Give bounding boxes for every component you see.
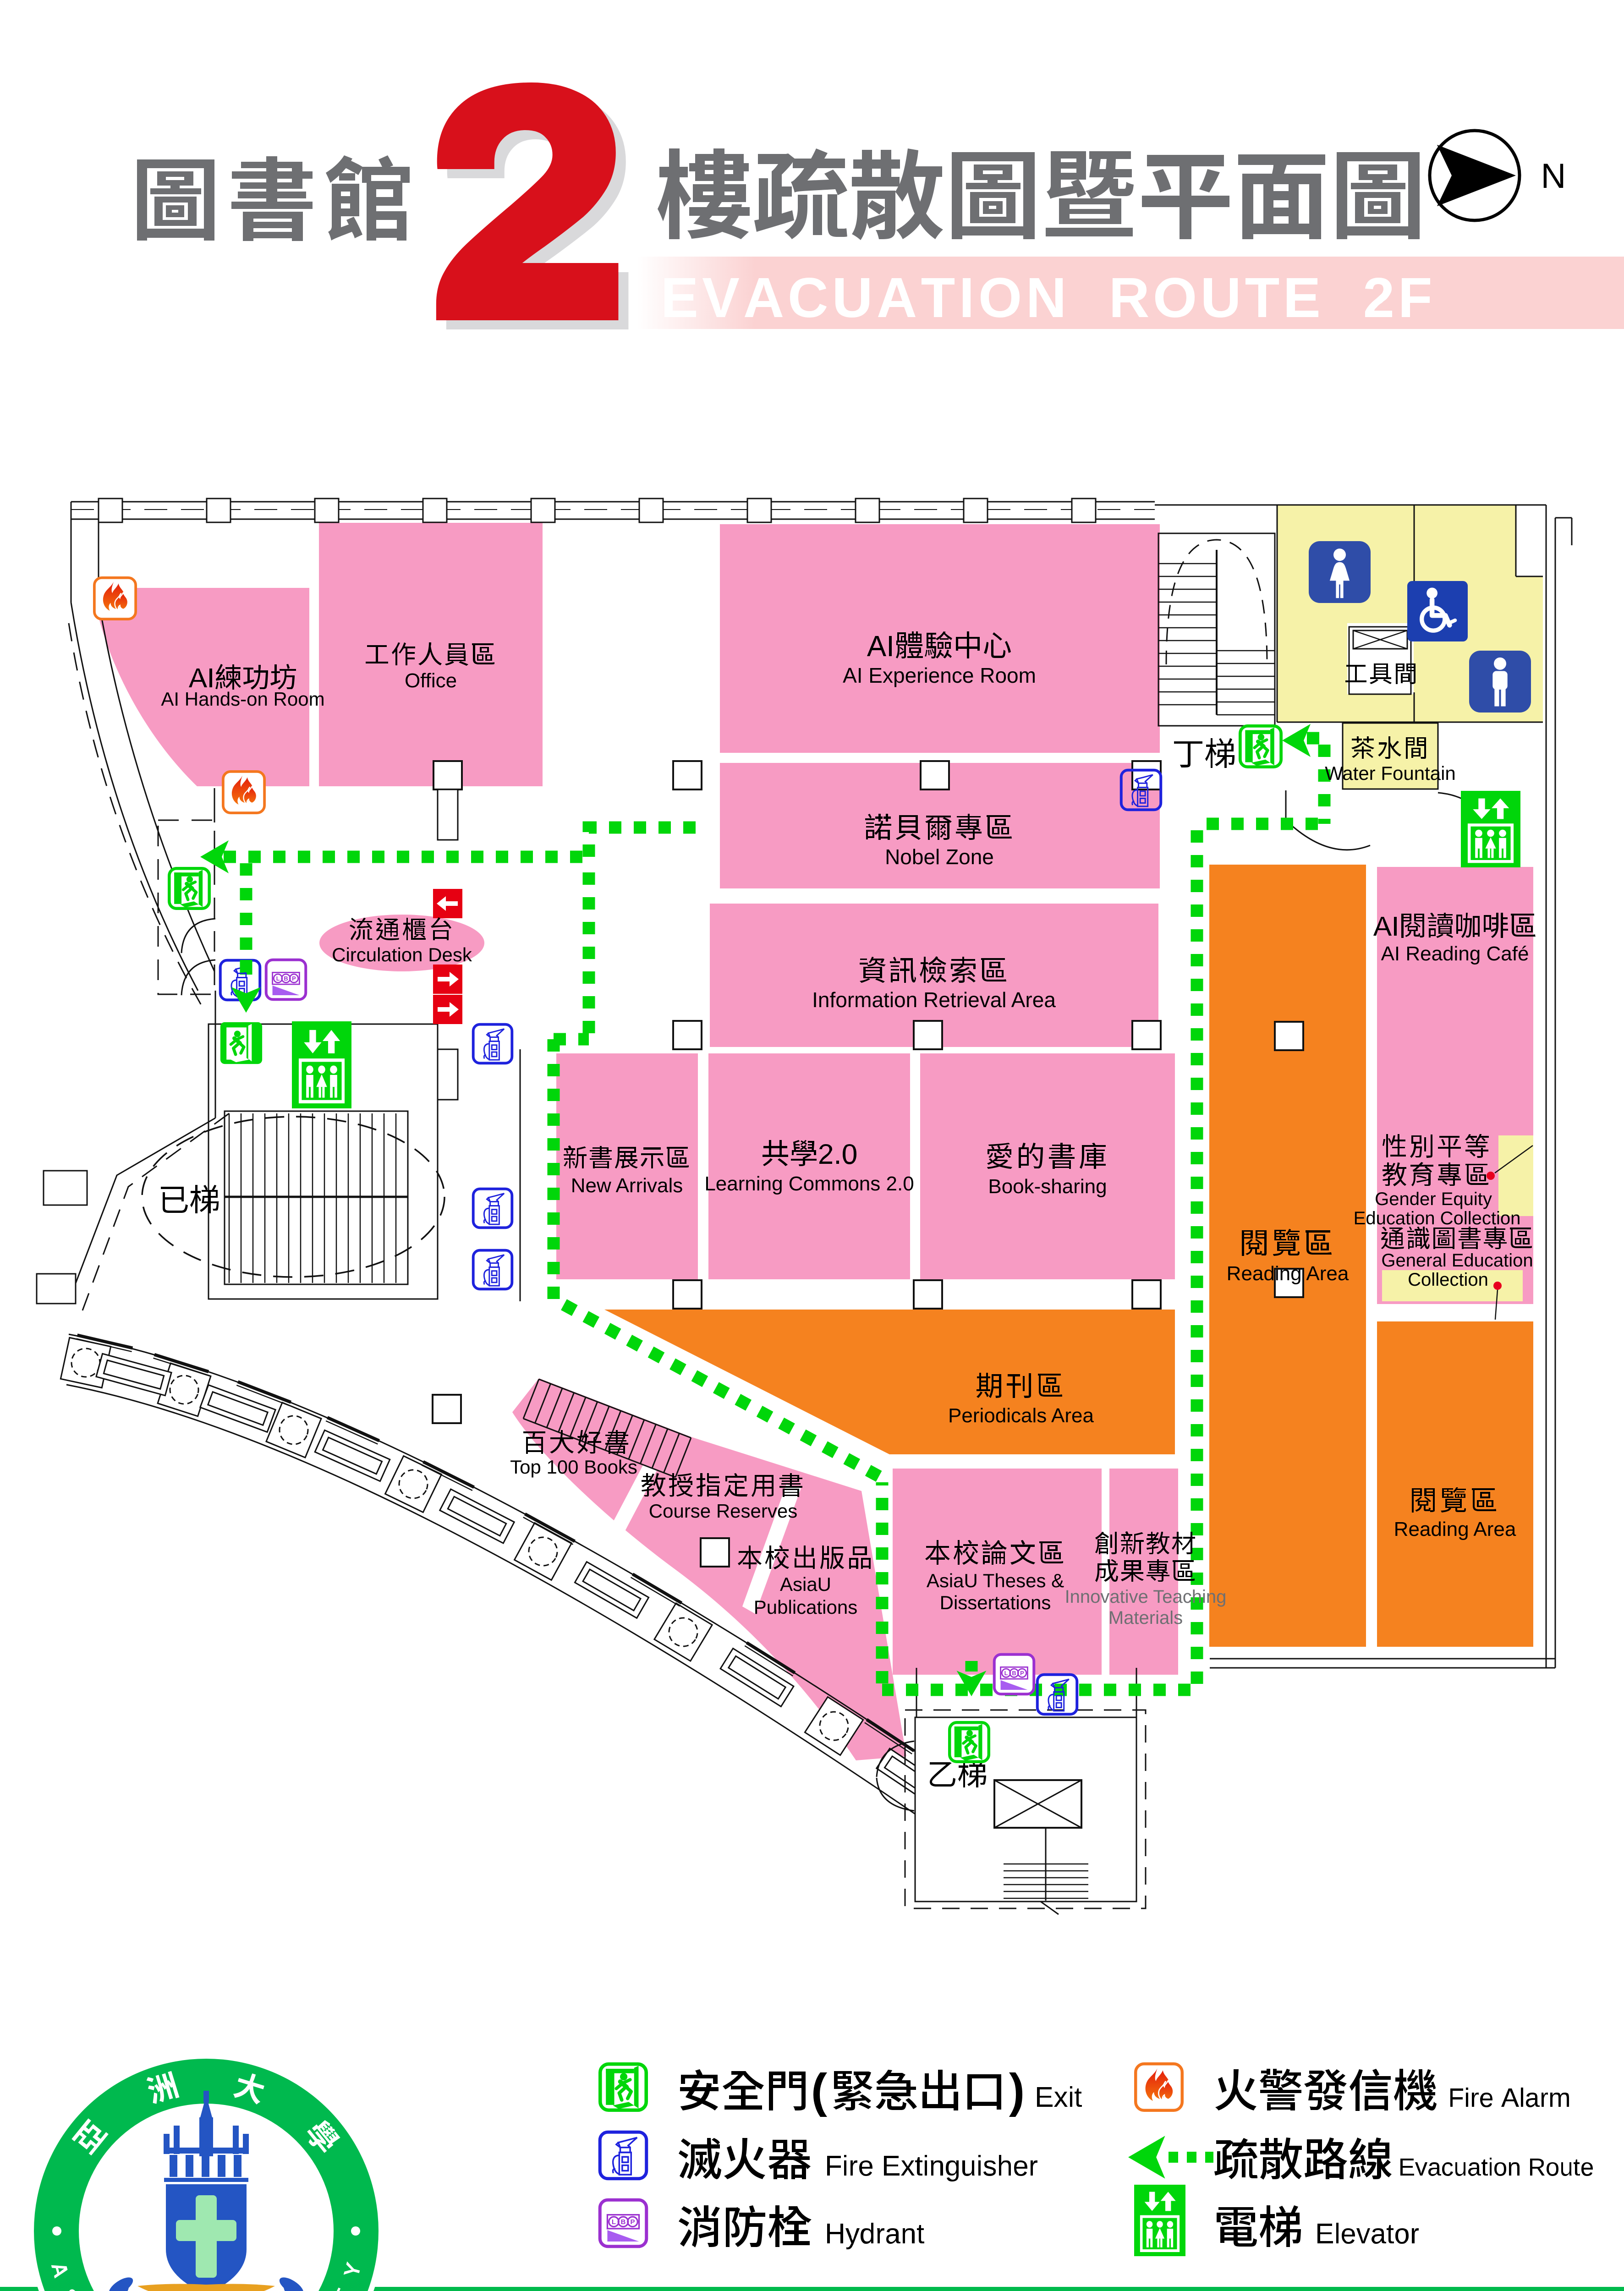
svg-text:Gender Equity: Gender Equity	[1375, 1189, 1492, 1209]
svg-text:N: N	[1541, 157, 1566, 196]
svg-text:Office: Office	[405, 669, 457, 692]
svg-text:Nobel Zone: Nobel Zone	[885, 845, 994, 869]
svg-text:L: L	[1004, 1670, 1008, 1677]
svg-text:General Education: General Education	[1381, 1250, 1533, 1271]
svg-text:AsiaU: AsiaU	[780, 1573, 831, 1595]
svg-text:AI Experience Room: AI Experience Room	[843, 663, 1036, 687]
svg-text:Collection: Collection	[1408, 1270, 1488, 1290]
svg-text:New Arrivals: New Arrivals	[571, 1174, 683, 1197]
svg-text:Book-sharing: Book-sharing	[988, 1175, 1107, 1198]
svg-text:Learning Commons 2.0: Learning Commons 2.0	[704, 1173, 914, 1195]
svg-text:B: B	[621, 2218, 626, 2226]
svg-text:Reading Area: Reading Area	[1394, 1518, 1516, 1540]
svg-text:AI Reading Café: AI Reading Café	[1381, 943, 1529, 965]
svg-text:Water Fountain: Water Fountain	[1325, 762, 1456, 784]
svg-text:B: B	[284, 975, 288, 982]
svg-text:B: B	[1012, 1670, 1016, 1677]
svg-text:Information Retrieval Area: Information Retrieval Area	[812, 988, 1056, 1012]
svg-text:Reading Area: Reading Area	[1227, 1262, 1349, 1285]
svg-text:L: L	[612, 2218, 616, 2226]
svg-text:P: P	[292, 975, 296, 982]
svg-text:Course Reserves: Course Reserves	[649, 1500, 797, 1522]
svg-text:Materials: Materials	[1108, 1608, 1183, 1628]
svg-text:AI Hands-on Room: AI Hands-on Room	[161, 688, 324, 710]
svg-text:Publications: Publications	[754, 1596, 857, 1618]
svg-text:Innovative Teaching: Innovative Teaching	[1065, 1587, 1227, 1607]
svg-text:AsiaU Theses &: AsiaU Theses &	[927, 1570, 1064, 1591]
svg-text:Dissertations: Dissertations	[940, 1592, 1051, 1613]
svg-text:Circulation Desk: Circulation Desk	[332, 944, 472, 965]
svg-text:L: L	[276, 975, 280, 982]
svg-text:Education Collection: Education Collection	[1354, 1208, 1521, 1228]
svg-text:Top 100 Books: Top 100 Books	[510, 1456, 637, 1478]
svg-text:P: P	[1020, 1670, 1024, 1677]
svg-text:P: P	[630, 2218, 635, 2226]
svg-text:Periodicals Area: Periodicals Area	[948, 1404, 1094, 1427]
